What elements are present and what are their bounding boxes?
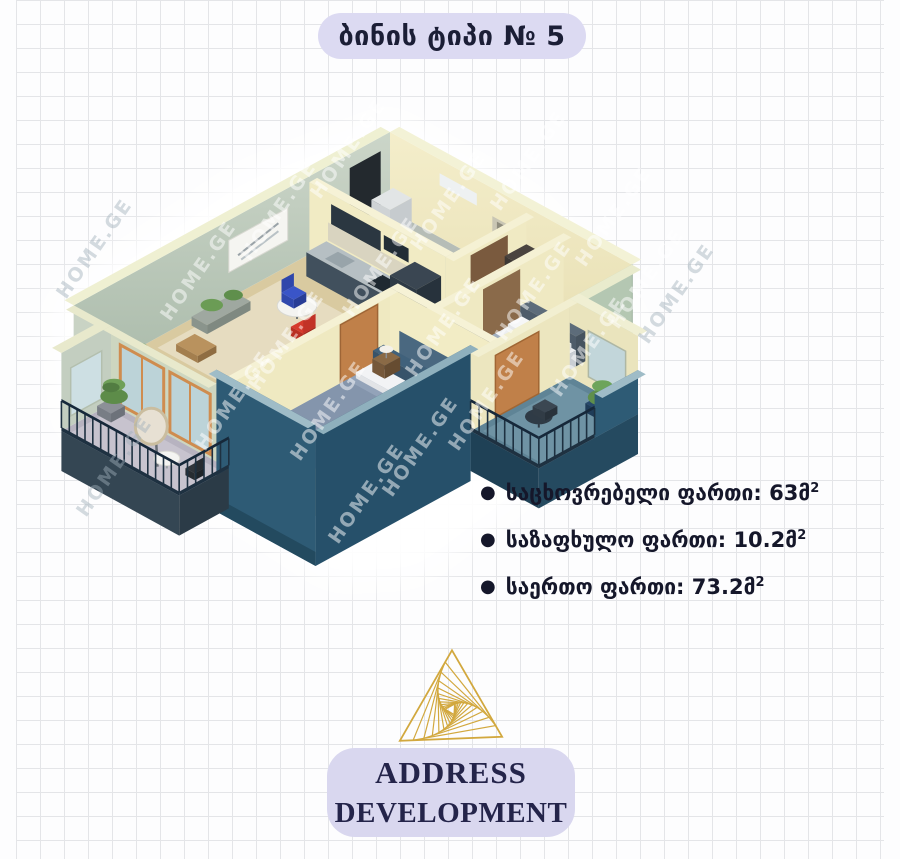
page-title-pill: ბინის ტიპი № 5 bbox=[318, 13, 586, 59]
bullet-icon: ● bbox=[480, 574, 496, 600]
bullet-icon: ● bbox=[480, 480, 496, 506]
area-item: ●საცხოვრებელი ფართი: 63მ2 bbox=[480, 480, 819, 506]
bullet-icon: ● bbox=[480, 527, 496, 553]
brand-name-line1: ADDRESS bbox=[375, 753, 527, 793]
area-label: საცხოვრებელი ფართი: 63მ2 bbox=[506, 480, 820, 506]
brand-name-pill: ADDRESS DEVELOPMENT bbox=[327, 748, 575, 837]
area-label: საზაფხულო ფართი: 10.2მ2 bbox=[506, 527, 807, 553]
page-title: ბინის ტიპი № 5 bbox=[338, 21, 565, 52]
area-label: საერთო ფართი: 73.2მ2 bbox=[506, 574, 765, 600]
area-superscript: 2 bbox=[756, 575, 765, 590]
page: ბინის ტიპი № 5 HOME.GEHOME.GEHOME.GEHOME… bbox=[0, 0, 900, 859]
brand-name-line2: DEVELOPMENT bbox=[335, 793, 568, 833]
brand-logo-triangle bbox=[391, 645, 509, 748]
area-list: ●საცხოვრებელი ფართი: 63მ2●საზაფხულო ფართ… bbox=[480, 480, 819, 621]
area-superscript: 2 bbox=[810, 481, 819, 496]
area-superscript: 2 bbox=[797, 528, 806, 543]
area-item: ●საერთო ფართი: 73.2მ2 bbox=[480, 574, 819, 600]
area-item: ●საზაფხულო ფართი: 10.2მ2 bbox=[480, 527, 819, 553]
